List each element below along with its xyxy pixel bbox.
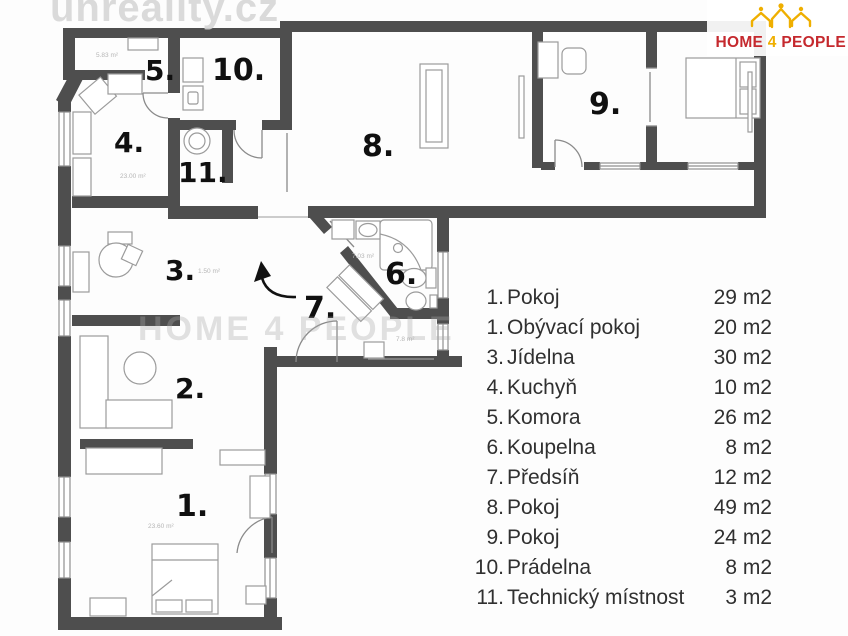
area-text: 5.83 m² bbox=[96, 52, 119, 59]
room-label-1: 1. bbox=[176, 489, 208, 524]
legend-name: Kuchyň bbox=[507, 376, 577, 400]
legend-num: 1. bbox=[460, 316, 504, 340]
logo-word-home: HOME bbox=[715, 34, 763, 51]
legend-area: 26 m2 bbox=[714, 406, 772, 430]
room-label-5: 5. bbox=[145, 54, 175, 87]
legend-name: Prádelna bbox=[507, 556, 591, 580]
legend-row: 10.Prádelna8 m2 bbox=[460, 553, 772, 583]
room-label-3: 3. bbox=[165, 254, 195, 287]
three-houses-icon bbox=[750, 3, 812, 29]
legend-row: 5.Komora26 m2 bbox=[460, 403, 772, 433]
logo-word-4: 4 bbox=[768, 34, 777, 51]
legend-num: 8. bbox=[460, 496, 504, 520]
legend-row: 3.Jídelna30 m2 bbox=[460, 343, 772, 373]
legend-row: 7.Předsíň12 m2 bbox=[460, 463, 772, 493]
legend-row: 6.Koupelna8 m2 bbox=[460, 433, 772, 463]
home4people-logo: HOME 4 PEOPLE bbox=[707, 0, 848, 56]
legend-name: Předsíň bbox=[507, 466, 579, 490]
area-text: 23.00 m² bbox=[120, 173, 146, 180]
legend-row: 1.Pokoj29 m2 bbox=[460, 283, 772, 313]
legend-row: 4.Kuchyň10 m2 bbox=[460, 373, 772, 403]
legend-num: 7. bbox=[460, 466, 504, 490]
legend-name: Komora bbox=[507, 406, 581, 430]
room-label-8: 8. bbox=[362, 129, 394, 164]
room-label-7: 7. bbox=[304, 291, 336, 326]
legend-row: 1.Obývací pokoj20 m2 bbox=[460, 313, 772, 343]
legend-num: 11. bbox=[460, 586, 504, 610]
floorplan-page: 1.2.3.4.5.6.7.8.9.10.11. 5.83 m²23.00 m²… bbox=[0, 0, 848, 636]
area-text: 23.60 m² bbox=[148, 523, 174, 530]
legend-name: Koupelna bbox=[507, 436, 596, 460]
logo-wordmark: HOME 4 PEOPLE bbox=[715, 34, 846, 52]
legend-area: 20 m2 bbox=[714, 316, 772, 340]
entrance-arrow bbox=[254, 261, 296, 297]
legend-area: 10 m2 bbox=[714, 376, 772, 400]
room-label-4: 4. bbox=[114, 126, 144, 159]
legend-name: Jídelna bbox=[507, 346, 575, 370]
legend-num: 6. bbox=[460, 436, 504, 460]
area-text: 7.8 m² bbox=[396, 336, 415, 343]
legend-area: 12 m2 bbox=[714, 466, 772, 490]
legend-area: 29 m2 bbox=[714, 286, 772, 310]
legend-num: 3. bbox=[460, 346, 504, 370]
legend-name: Pokoj bbox=[507, 286, 560, 310]
legend-num: 1. bbox=[460, 286, 504, 310]
room-legend: 1.Pokoj29 m21.Obývací pokoj20 m23.Jídeln… bbox=[460, 283, 772, 613]
legend-row: 11.Technický místnost3 m2 bbox=[460, 583, 772, 613]
legend-name: Obývací pokoj bbox=[507, 316, 640, 340]
legend-name: Pokoj bbox=[507, 496, 560, 520]
area-text: 1.50 m² bbox=[198, 268, 221, 275]
logo-word-people: PEOPLE bbox=[781, 34, 846, 51]
legend-area: 3 m2 bbox=[725, 586, 772, 610]
room-label-6: 6. bbox=[385, 257, 417, 292]
room-label-9: 9. bbox=[589, 87, 621, 122]
legend-area: 49 m2 bbox=[714, 496, 772, 520]
legend-num: 9. bbox=[460, 526, 504, 550]
legend-num: 10. bbox=[460, 556, 504, 580]
legend-name: Technický místnost bbox=[507, 586, 684, 610]
room-label-2: 2. bbox=[175, 372, 205, 405]
legend-num: 4. bbox=[460, 376, 504, 400]
room-label-11: 11. bbox=[178, 156, 228, 189]
legend-row: 9.Pokoj24 m2 bbox=[460, 523, 772, 553]
legend-num: 5. bbox=[460, 406, 504, 430]
legend-row: 8.Pokoj49 m2 bbox=[460, 493, 772, 523]
legend-area: 30 m2 bbox=[714, 346, 772, 370]
legend-area: 8 m2 bbox=[725, 436, 772, 460]
legend-area: 8 m2 bbox=[725, 556, 772, 580]
room-label-10: 10. bbox=[212, 53, 265, 88]
legend-area: 24 m2 bbox=[714, 526, 772, 550]
area-text: 7.03 m² bbox=[352, 253, 375, 260]
legend-name: Pokoj bbox=[507, 526, 560, 550]
